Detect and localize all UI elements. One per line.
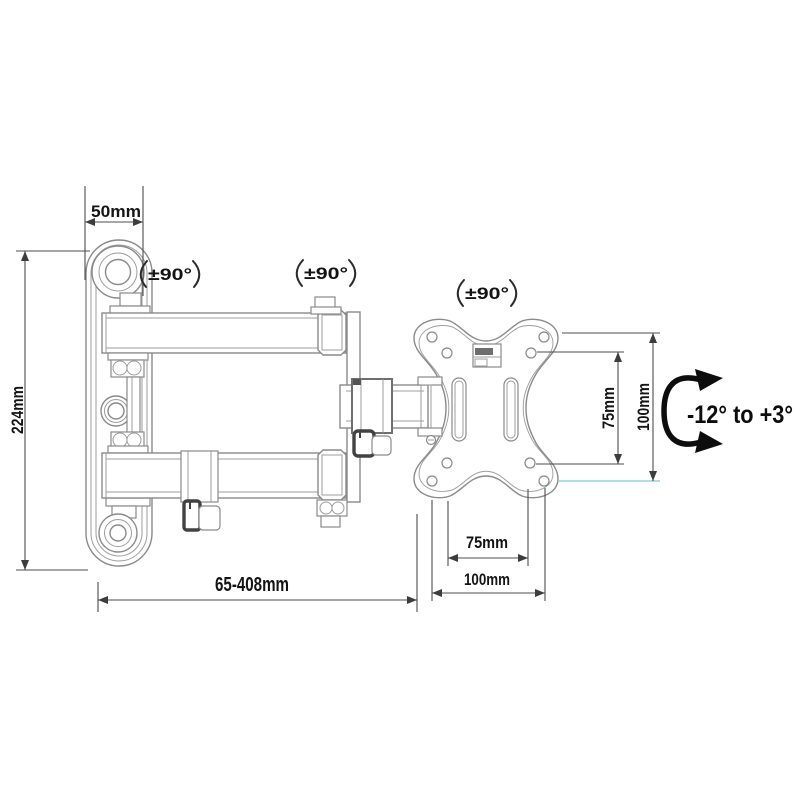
swivel-angle-label: ±90° [304,264,348,283]
vesa-hole-100-tr [539,332,549,342]
vesa-plate [414,319,558,497]
dim-wall-plate-height: 224mm [8,251,90,570]
vesa-hole-75-tl [442,348,452,358]
rotation-arc-icon [297,260,303,286]
pivot-cap [321,516,340,527]
swivel-label-1: ±90° [141,261,200,287]
extension-range-label: 65-408mm [215,574,289,596]
wall-plate-height-label: 224mm [8,386,27,434]
tilt-annotation: -12° to +3° [664,369,793,453]
vesa-hole-100-tl [427,332,437,342]
swivel-label-2: ±90° [297,260,356,286]
dim-vesa-hole-height: 75mm [536,352,624,464]
wall-plate-width-label: 50mm [91,202,141,221]
vesa-hole-height-label: 75mm [599,387,618,429]
wall-mount-technical-diagram: 50mm 224mm 65-408mm 75mm 100mm [0,0,800,800]
vesa-hole-100-bl [427,476,437,486]
pivot-flange [108,446,148,453]
vesa-hole-width-label: 75mm [466,533,508,552]
vesa-plate-height-label: 100mm [634,383,653,431]
tilt-tab-top [418,377,442,385]
tilt-tab-bottom [418,428,442,436]
rotation-arc-icon [193,261,199,287]
swivel-angle-label: ±90° [465,284,509,303]
pivot-flange [311,307,341,314]
pivot-flange [108,353,148,360]
vesa-hole-75-tr [526,348,536,358]
quick-release-latch [473,344,501,367]
swivel-angle-label: ±90° [148,265,192,284]
wall-plate [86,240,152,566]
vesa-rail-right [504,378,518,441]
vesa-hole-75-bl [442,458,452,468]
pivot-flange [106,498,150,506]
clip-hook-light [199,506,220,530]
clip-hook-dark [354,431,374,456]
tilt-arrowhead-top [695,369,723,391]
rotation-arc-icon [510,280,516,306]
arm-clamp [352,379,392,433]
rotation-arc-icon [349,260,355,286]
vesa-rail-left [452,378,466,441]
link-bar [127,377,140,435]
dim-vesa-hole-width: 75mm [448,489,528,566]
extension-arm [340,379,428,456]
clip-sleeve [181,451,218,502]
clamp-cap [353,379,361,385]
tilt-range-label: -12° to +3° [687,401,793,429]
rotation-arc-icon [458,280,464,306]
vesa-hole-100-br [539,476,549,486]
tilt-arrowhead-bottom [695,431,723,453]
swivel-label-3: ±90° [458,280,517,306]
vesa-plate-width-label: 100mm [464,570,510,589]
clip-hook-light [372,436,391,455]
cable-clip-lower-arm [181,451,220,530]
vesa-hole-75-br [525,458,535,468]
pivot-cap [120,293,141,306]
clip-hook-dark [184,501,200,530]
mount-diagram-svg: 50mm 224mm 65-408mm 75mm 100mm [0,0,800,800]
